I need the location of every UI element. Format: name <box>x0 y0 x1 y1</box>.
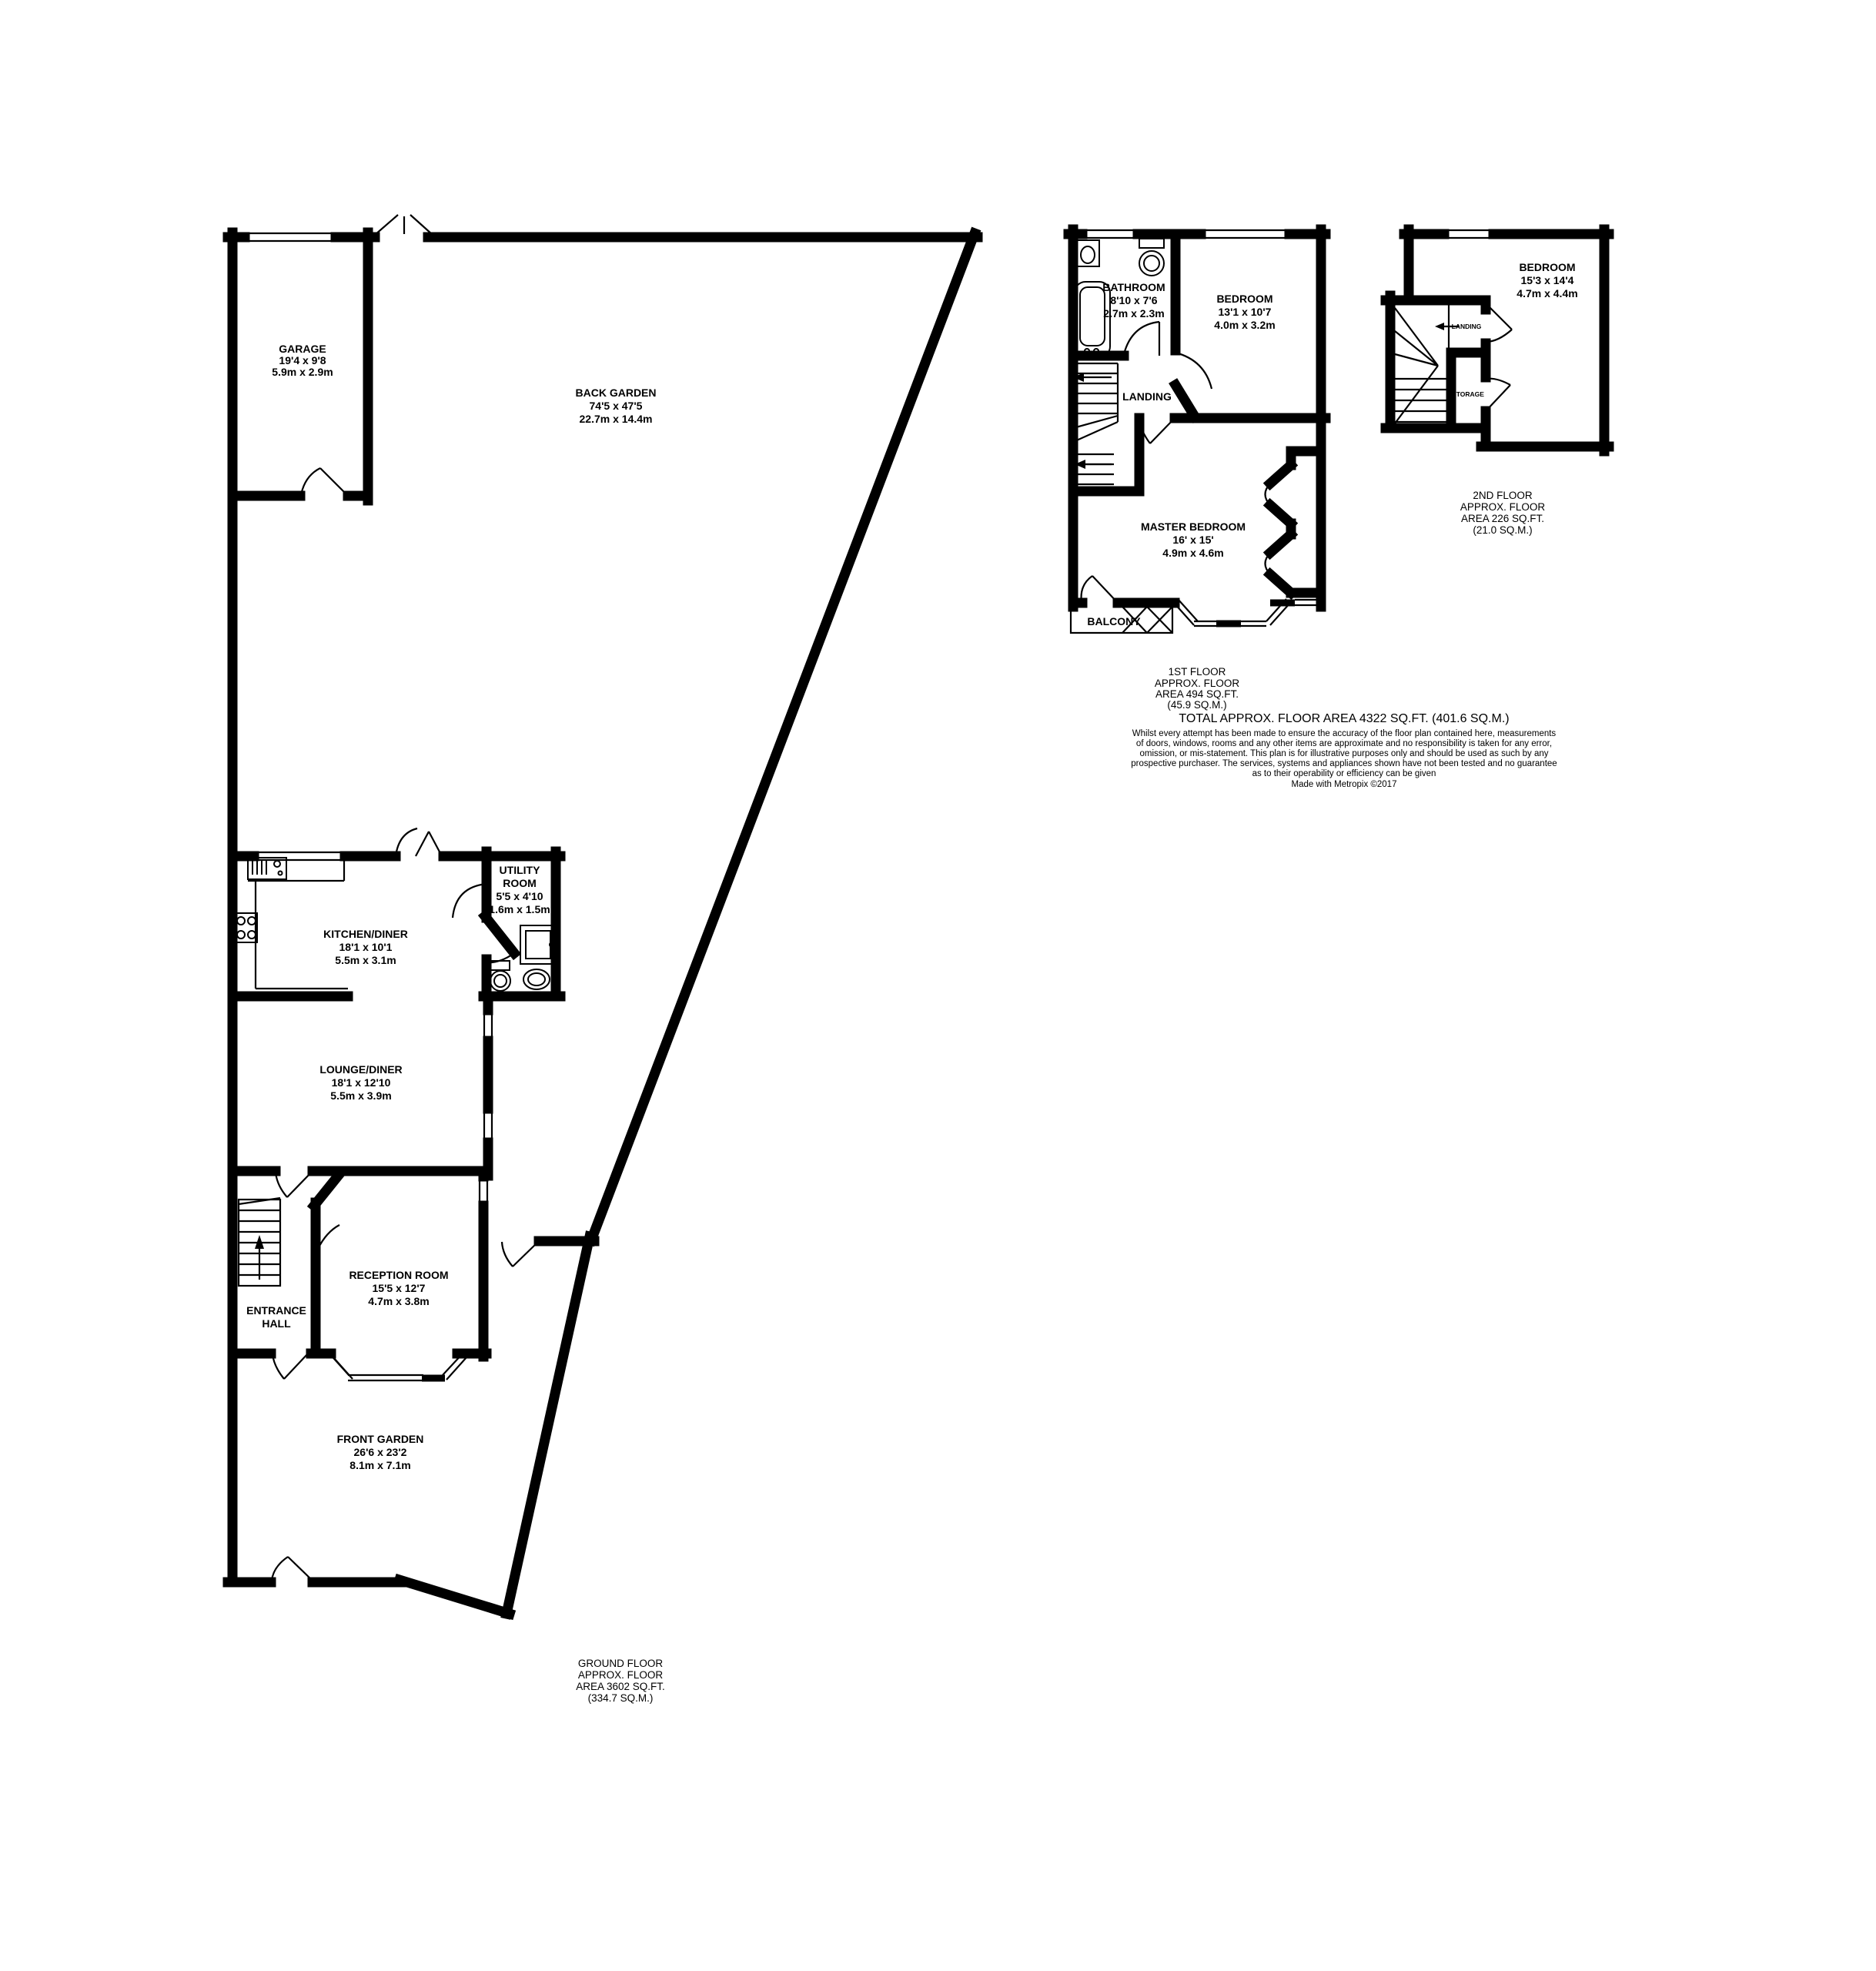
kitchen-label: KITCHEN/DINER 18'1 x 10'1 5.5m x 3.1m <box>323 928 408 966</box>
garden-gate-bottom <box>272 1557 313 1581</box>
back-garden-name: BACK GARDEN <box>576 387 657 399</box>
second-bedroom-dims-imperial: 15'3 x 14'4 <box>1521 274 1574 286</box>
disclaimer-line2: of doors, windows, rooms and any other i… <box>1136 739 1552 748</box>
second-bedroom-dims-metric: 4.7m x 4.4m <box>1517 287 1577 299</box>
reception-walls <box>314 1171 487 1357</box>
disclaimer-line1: Whilst every attempt has been made to en… <box>1132 729 1557 738</box>
disclaimer-line5: as to their operability or efficiency ca… <box>1252 769 1436 778</box>
plot-boundary-walls <box>228 233 978 1614</box>
totals-and-disclaimer: TOTAL APPROX. FLOOR AREA 4322 SQ.FT. (40… <box>1131 712 1557 789</box>
ground-floor-plan: GARAGE 19'4 x 9'8 5.9m x 2.9m BACK GARDE… <box>228 215 978 1704</box>
second-bedroom-name: BEDROOM <box>1519 261 1575 273</box>
made-with-text: Made with Metropix ©2017 <box>1292 780 1397 789</box>
second-bedroom-label: BEDROOM 15'3 x 14'4 4.7m x 4.4m <box>1517 261 1577 299</box>
basin-icon <box>523 969 550 989</box>
balcony-label: BALCONY <box>1087 615 1141 627</box>
front-garden-dims-metric: 8.1m x 7.1m <box>349 1459 410 1471</box>
lounge-label: LOUNGE/DINER 18'1 x 12'10 5.5m x 3.9m <box>319 1063 402 1102</box>
lounge-name: LOUNGE/DINER <box>319 1063 402 1076</box>
bathroom-dims-metric: 2.7m x 2.3m <box>1103 307 1164 320</box>
bathroom-dims-imperial: 8'10 x 7'6 <box>1110 294 1157 306</box>
first-area-line3: AREA 494 SQ.FT. <box>1155 688 1239 700</box>
ground-area-line1: GROUND FLOOR <box>578 1658 664 1669</box>
front-garden-label: FRONT GARDEN 26'6 x 23'2 8.1m x 7.1m <box>337 1433 424 1471</box>
first-bedroom-label: BEDROOM 13'1 x 10'7 4.0m x 3.2m <box>1214 293 1275 331</box>
entrance-hall-name-line2: HALL <box>262 1317 291 1330</box>
garage-label: GARAGE 19'4 x 9'8 5.9m x 2.9m <box>272 343 333 378</box>
lounge-dims-metric: 5.5m x 3.9m <box>330 1089 391 1102</box>
second-floor-area-label: 2ND FLOOR APPROX. FLOOR AREA 226 SQ.FT. … <box>1460 490 1546 536</box>
first-floor-stairs <box>1073 363 1118 484</box>
second-landing-label: LANDING <box>1452 323 1482 330</box>
storage-walls <box>1451 353 1486 425</box>
first-bedroom-name: BEDROOM <box>1216 293 1272 305</box>
first-bedroom-dims-metric: 4.0m x 3.2m <box>1214 319 1275 331</box>
disclaimer-line3: omission, or mis-statement. This plan is… <box>1140 749 1549 758</box>
entrance-hall-name-line1: ENTRANCE <box>246 1304 306 1317</box>
first-area-line2: APPROX. FLOOR <box>1155 678 1240 689</box>
bathroom-toilet-icon <box>1139 239 1164 276</box>
garage-dims-imperial: 19'4 x 9'8 <box>279 354 326 366</box>
floorplan-canvas: GARAGE 19'4 x 9'8 5.9m x 2.9m BACK GARDE… <box>0 0 1876 1971</box>
front-garden-name: FRONT GARDEN <box>337 1433 424 1445</box>
master-dims-imperial: 16' x 15' <box>1172 534 1213 546</box>
first-area-line4: (45.9 SQ.M.) <box>1167 699 1226 711</box>
master-name: MASTER BEDROOM <box>1141 520 1246 533</box>
lounge-dims-imperial: 18'1 x 12'10 <box>332 1076 391 1089</box>
bathroom-sink-icon <box>1076 240 1099 266</box>
utility-dims-metric: 1.6m x 1.5m <box>489 903 550 915</box>
disclaimer-line4: prospective purchaser. The services, sys… <box>1131 759 1557 768</box>
master-bedroom-label: MASTER BEDROOM 16' x 15' 4.9m x 4.6m <box>1141 520 1246 559</box>
entrance-hall-stairs <box>239 1198 280 1286</box>
kitchen-name: KITCHEN/DINER <box>323 928 408 940</box>
second-area-line3: AREA 226 SQ.FT. <box>1461 513 1544 524</box>
utility-name-line2: ROOM <box>503 877 537 889</box>
storage-label: STORAGE <box>1452 390 1484 398</box>
front-garden-dims-imperial: 26'6 x 23'2 <box>354 1446 407 1458</box>
total-area-text: TOTAL APPROX. FLOOR AREA 4322 SQ.FT. (40… <box>1179 712 1509 725</box>
first-area-line1: 1ST FLOOR <box>1169 666 1226 678</box>
reception-label: RECEPTION ROOM 15'5 x 12'7 4.7m x 3.8m <box>349 1269 448 1307</box>
utility-label: UTILITY ROOM 5'5 x 4'10 1.6m x 1.5m <box>489 864 550 915</box>
ground-floor-area-label: GROUND FLOOR APPROX. FLOOR AREA 3602 SQ.… <box>576 1658 665 1704</box>
entrance-hall-label: ENTRANCE HALL <box>246 1304 306 1330</box>
shower-icon <box>520 925 556 964</box>
first-floor-area-label: 1ST FLOOR APPROX. FLOOR AREA 494 SQ.FT. … <box>1155 666 1240 711</box>
ground-area-line2: APPROX. FLOOR <box>578 1669 664 1681</box>
second-area-line1: 2ND FLOOR <box>1473 490 1533 501</box>
utility-name-line1: UTILITY <box>500 864 541 876</box>
second-floor-plan: LANDING STORAGE BEDROOM 15'3 x 14'4 4.7m… <box>1386 229 1609 536</box>
balcony: BALCONY <box>1071 607 1172 633</box>
garage-dims-metric: 5.9m x 2.9m <box>272 366 333 378</box>
bathroom-walls <box>1073 234 1212 417</box>
second-area-line2: APPROX. FLOOR <box>1460 501 1546 513</box>
master-dims-metric: 4.9m x 4.6m <box>1162 547 1223 559</box>
garage-name: GARAGE <box>279 343 326 355</box>
front-door <box>232 1354 308 1379</box>
second-area-line4: (21.0 SQ.M.) <box>1473 524 1532 536</box>
first-bedroom-dims-imperial: 13'1 x 10'7 <box>1219 306 1272 318</box>
reception-dims-imperial: 15'5 x 12'7 <box>373 1282 426 1294</box>
first-landing-label: LANDING <box>1122 390 1172 403</box>
bathroom-name: BATHROOM <box>1102 281 1165 293</box>
garden-gate-top <box>375 215 433 235</box>
utility-dims-imperial: 5'5 x 4'10 <box>496 890 543 902</box>
bathroom-label: BATHROOM 8'10 x 7'6 2.7m x 2.3m <box>1102 281 1165 320</box>
master-alcove-walls <box>1266 451 1322 593</box>
side-passage-door <box>502 1241 539 1267</box>
reception-bay-window <box>311 1353 487 1380</box>
reception-dims-metric: 4.7m x 3.8m <box>368 1295 429 1307</box>
reception-name: RECEPTION ROOM <box>349 1269 448 1281</box>
ground-area-line4: (334.7 SQ.M.) <box>588 1692 654 1704</box>
kitchen-dims-metric: 5.5m x 3.1m <box>335 954 396 966</box>
kitchen-dims-imperial: 18'1 x 10'1 <box>339 941 393 953</box>
back-garden-dims-imperial: 74'5 x 47'5 <box>590 400 643 412</box>
ground-area-line3: AREA 3602 SQ.FT. <box>576 1681 665 1692</box>
back-garden-dims-metric: 22.7m x 14.4m <box>580 413 653 425</box>
first-floor-plan: BATHROOM 8'10 x 7'6 2.7m x 2.3m BEDROOM … <box>1068 229 1326 711</box>
back-garden-label: BACK GARDEN 74'5 x 47'5 22.7m x 14.4m <box>576 387 657 425</box>
floorplan-page: GARAGE 19'4 x 9'8 5.9m x 2.9m BACK GARDE… <box>0 0 1876 1971</box>
